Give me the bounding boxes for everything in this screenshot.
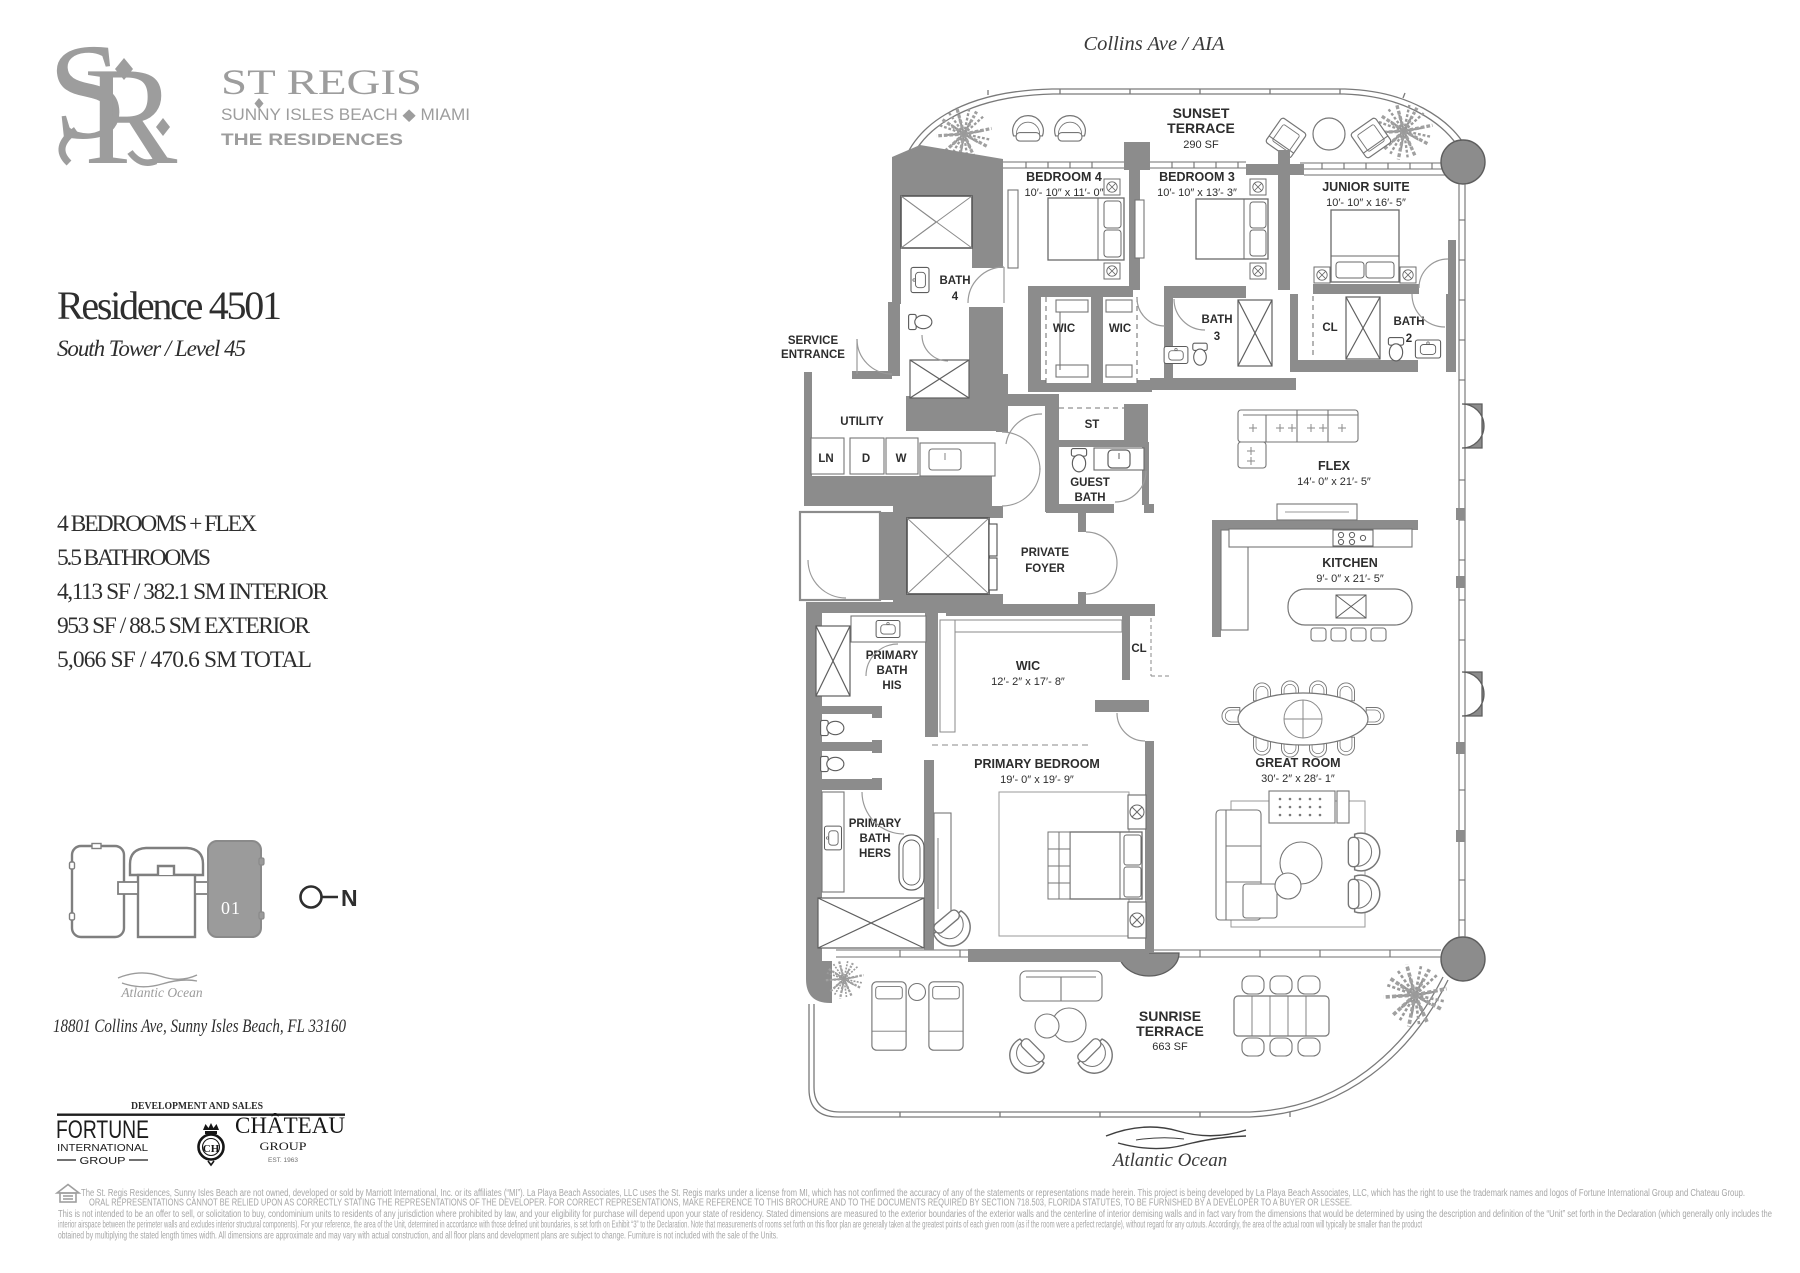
- svg-text:ENTRANCE: ENTRANCE: [781, 349, 845, 361]
- svg-text:FORTUNE: FORTUNE: [56, 1116, 149, 1144]
- svg-text:5.5 BATHROOMS: 5.5 BATHROOMS: [57, 545, 211, 571]
- svg-text:10′- 10″ x 16′- 5″: 10′- 10″ x 16′- 5″: [1326, 197, 1406, 209]
- svg-text:FOYER: FOYER: [1025, 563, 1065, 575]
- svg-text:4: 4: [952, 291, 959, 303]
- svg-text:SERVICE: SERVICE: [788, 335, 839, 347]
- svg-text:Collins Ave / AIA: Collins Ave / AIA: [1083, 33, 1225, 55]
- svg-text:R: R: [84, 39, 178, 194]
- svg-text:ST: ST: [1085, 419, 1100, 431]
- svg-text:HERS: HERS: [859, 848, 891, 860]
- svg-text:GUEST: GUEST: [1070, 477, 1110, 489]
- svg-text:obtained by multiplying the st: obtained by multiplying the stated lengt…: [58, 1231, 778, 1242]
- svg-text:PRIMARY: PRIMARY: [849, 818, 902, 830]
- svg-text:2: 2: [1406, 333, 1412, 345]
- svg-text:663 SF: 663 SF: [1152, 1041, 1188, 1053]
- svg-text:BATH: BATH: [859, 833, 890, 845]
- svg-text:CHÂTEAU: CHÂTEAU: [235, 1113, 345, 1138]
- svg-text:WIC: WIC: [1053, 323, 1075, 335]
- svg-text:SUNSET: SUNSET: [1173, 105, 1230, 121]
- svg-text:953 SF / 88.5 SM EXTERIOR: 953 SF / 88.5 SM EXTERIOR: [57, 613, 310, 639]
- svg-text:ST REGIS: ST REGIS: [221, 62, 422, 102]
- svg-text:BATH: BATH: [1201, 314, 1232, 326]
- svg-text:01: 01: [221, 898, 241, 918]
- svg-text:3: 3: [1214, 331, 1220, 343]
- svg-text:WIC: WIC: [1016, 659, 1040, 673]
- svg-text:JUNIOR SUITE: JUNIOR SUITE: [1322, 180, 1410, 194]
- svg-text:TERRACE: TERRACE: [1136, 1023, 1204, 1039]
- svg-text:INTERNATIONAL: INTERNATIONAL: [57, 1143, 148, 1154]
- svg-text:BEDROOM 4: BEDROOM 4: [1026, 170, 1102, 184]
- svg-text:PRIVATE: PRIVATE: [1021, 547, 1069, 559]
- svg-text:HIS: HIS: [882, 680, 902, 692]
- svg-text:GROUP: GROUP: [260, 1141, 307, 1153]
- svg-text:BATH: BATH: [876, 665, 907, 677]
- svg-text:30′- 2″ x 28′- 1″: 30′- 2″ x 28′- 1″: [1261, 773, 1335, 785]
- svg-text:FLEX: FLEX: [1318, 459, 1351, 473]
- svg-text:4,113 SF / 382.1 SM INTERIOR: 4,113 SF / 382.1 SM INTERIOR: [57, 579, 328, 605]
- svg-text:CL: CL: [1322, 322, 1337, 334]
- svg-text:PRIMARY BEDROOM: PRIMARY BEDROOM: [974, 757, 1100, 771]
- svg-text:SUNNY ISLES BEACH ◆ MIAMI: SUNNY ISLES BEACH ◆ MIAMI: [221, 106, 470, 124]
- svg-text:10′- 10″ x 13′- 3″: 10′- 10″ x 13′- 3″: [1157, 187, 1237, 199]
- svg-text:UTILITY: UTILITY: [840, 416, 884, 428]
- svg-text:TERRACE: TERRACE: [1167, 120, 1235, 136]
- svg-text:South Tower / Level 45: South Tower / Level 45: [57, 336, 246, 361]
- svg-text:290 SF: 290 SF: [1183, 139, 1219, 151]
- svg-text:4 BEDROOMS + FLEX: 4 BEDROOMS + FLEX: [57, 511, 257, 537]
- svg-text:W: W: [896, 453, 907, 465]
- svg-text:GREAT ROOM: GREAT ROOM: [1255, 756, 1340, 770]
- svg-text:BATH: BATH: [939, 275, 970, 287]
- svg-text:9′- 0″ x 21′- 5″: 9′- 0″ x 21′- 5″: [1316, 573, 1384, 585]
- svg-text:SUNRISE: SUNRISE: [1139, 1008, 1201, 1024]
- svg-text:CL: CL: [1131, 643, 1146, 655]
- svg-text:BATH: BATH: [1393, 316, 1424, 328]
- svg-text:Residence 4501: Residence 4501: [57, 283, 282, 328]
- svg-text:interior airspace between th: interior airspace between the perimeter …: [58, 1220, 1422, 1231]
- svg-text:D: D: [862, 453, 870, 465]
- svg-text:DEVELOPMENT AND SALES: DEVELOPMENT AND SALES: [131, 1100, 263, 1112]
- svg-text:CH: CH: [203, 1143, 220, 1155]
- svg-text:10′- 10″ x 11′- 0″: 10′- 10″ x 11′- 0″: [1025, 187, 1104, 199]
- svg-text:BEDROOM 3: BEDROOM 3: [1159, 170, 1235, 184]
- svg-text:GROUP: GROUP: [80, 1156, 126, 1167]
- svg-text:KITCHEN: KITCHEN: [1322, 556, 1378, 570]
- svg-text:BATH: BATH: [1074, 492, 1105, 504]
- svg-text:12′- 2″ x 17′- 8″: 12′- 2″ x 17′- 8″: [991, 676, 1065, 688]
- svg-text:Atlantic Ocean: Atlantic Ocean: [1111, 1150, 1228, 1171]
- svg-text:ORAL REPRESENTATIONS CANNOT BE: ORAL REPRESENTATIONS CANNOT BE RELIED UP…: [89, 1198, 1352, 1209]
- svg-text:LN: LN: [818, 453, 833, 465]
- svg-text:EST. 1963: EST. 1963: [268, 1157, 298, 1164]
- svg-text:This is not intended to be an: This is not intended to be an offer to s…: [58, 1209, 1772, 1220]
- svg-text:18801 Collins Ave, Sunny Isles: 18801 Collins Ave, Sunny Isles Beach, FL…: [53, 1017, 347, 1037]
- svg-text:19′- 0″ x 19′- 9″: 19′- 0″ x 19′- 9″: [1000, 774, 1074, 786]
- svg-text:WIC: WIC: [1109, 323, 1131, 335]
- svg-text:14′- 0″ x 21′- 5″: 14′- 0″ x 21′- 5″: [1297, 476, 1371, 488]
- svg-text:N: N: [341, 885, 358, 911]
- svg-text:5,066 SF / 470.6 SM TOTAL: 5,066 SF / 470.6 SM TOTAL: [57, 647, 312, 673]
- svg-text:Atlantic Ocean: Atlantic Ocean: [120, 985, 203, 1000]
- svg-text:THE RESIDENCES: THE RESIDENCES: [221, 131, 403, 149]
